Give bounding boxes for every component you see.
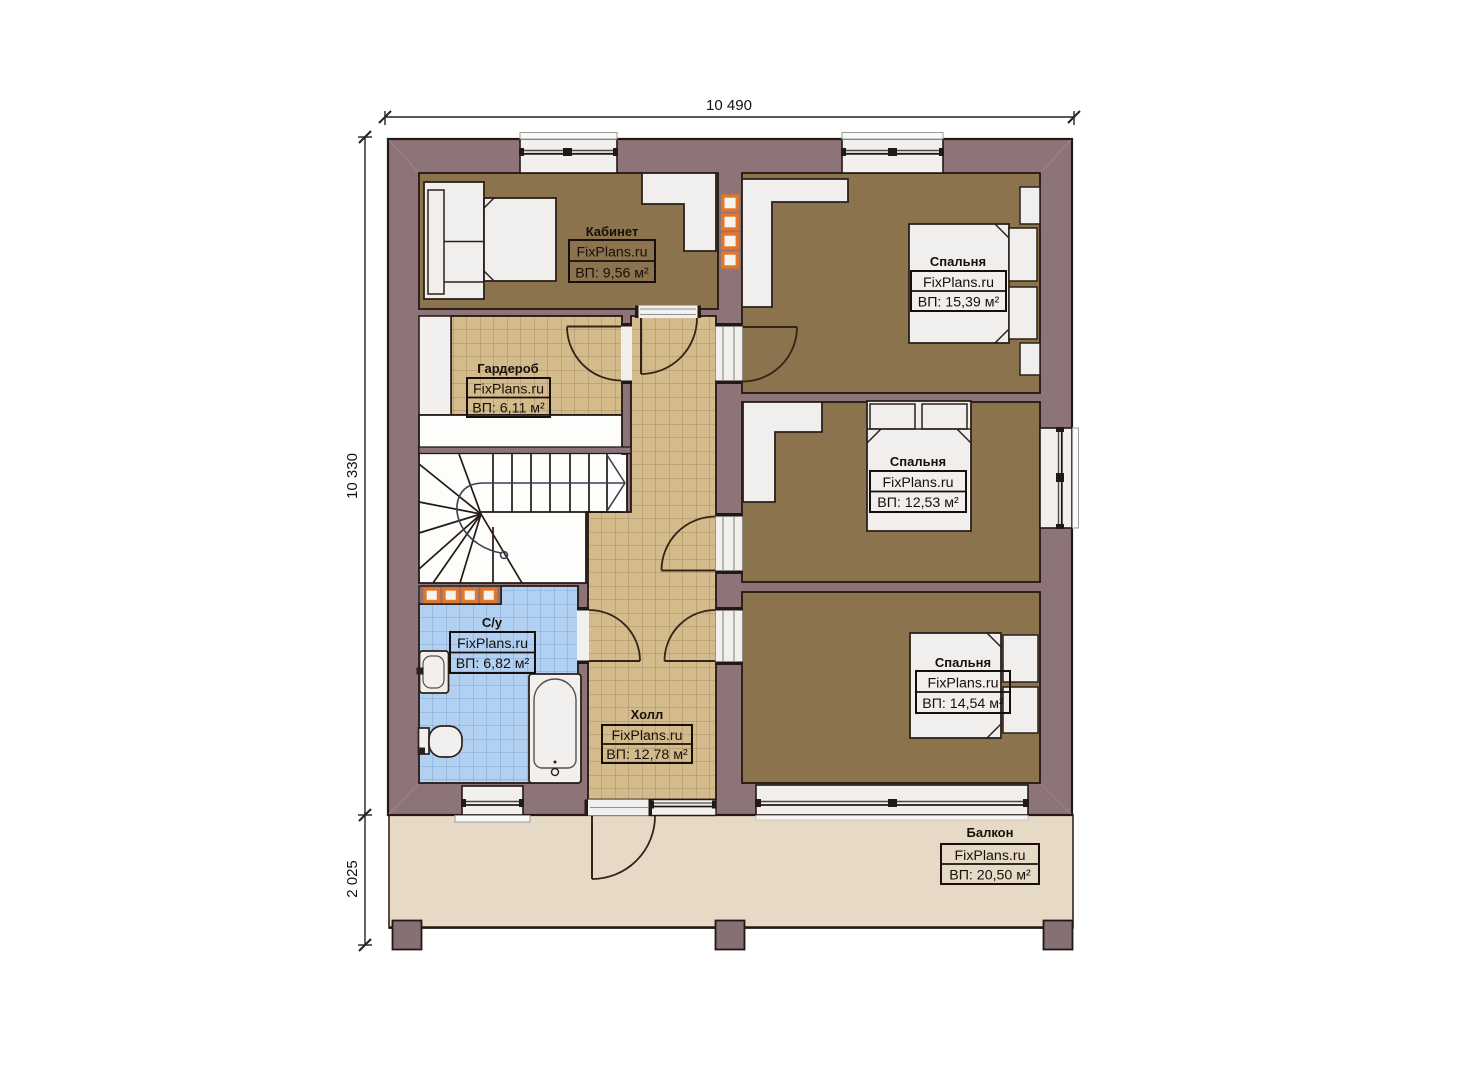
svg-text:FixPlans.ru: FixPlans.ru [923, 275, 994, 291]
svg-text:ВП: 15,39 м²: ВП: 15,39 м² [918, 295, 1000, 311]
svg-text:FixPlans.ru: FixPlans.ru [577, 245, 648, 261]
svg-text:ВП: 12,53 м²: ВП: 12,53 м² [877, 495, 959, 511]
svg-text:ВП: 6,82 м²: ВП: 6,82 м² [456, 656, 530, 672]
svg-text:FixPlans.ru: FixPlans.ru [883, 475, 954, 491]
svg-text:FixPlans.ru: FixPlans.ru [612, 728, 683, 744]
svg-text:ВП: 14,54 м²: ВП: 14,54 м² [922, 696, 1004, 712]
svg-text:ВП: 12,78 м²: ВП: 12,78 м² [606, 747, 688, 763]
svg-text:Спальня: Спальня [935, 655, 991, 670]
svg-text:10 330: 10 330 [344, 453, 361, 499]
svg-text:Спальня: Спальня [930, 254, 986, 269]
svg-text:FixPlans.ru: FixPlans.ru [473, 382, 544, 398]
svg-text:ВП: 6,11 м²: ВП: 6,11 м² [472, 401, 545, 417]
svg-text:С/у: С/у [482, 615, 503, 630]
svg-text:ВП: 20,50 м²: ВП: 20,50 м² [949, 868, 1031, 884]
svg-text:Спальня: Спальня [890, 454, 946, 469]
svg-text:Холл: Холл [631, 707, 664, 722]
svg-text:Кабинет: Кабинет [586, 224, 639, 239]
svg-text:FixPlans.ru: FixPlans.ru [955, 848, 1026, 864]
svg-text:ВП: 9,56 м²: ВП: 9,56 м² [575, 266, 649, 282]
svg-text:Балкон: Балкон [967, 825, 1014, 840]
svg-text:10 490: 10 490 [706, 97, 752, 114]
svg-text:2 025: 2 025 [344, 860, 361, 898]
svg-text:FixPlans.ru: FixPlans.ru [928, 676, 999, 692]
svg-text:FixPlans.ru: FixPlans.ru [457, 636, 528, 652]
svg-text:Гардероб: Гардероб [477, 361, 538, 376]
